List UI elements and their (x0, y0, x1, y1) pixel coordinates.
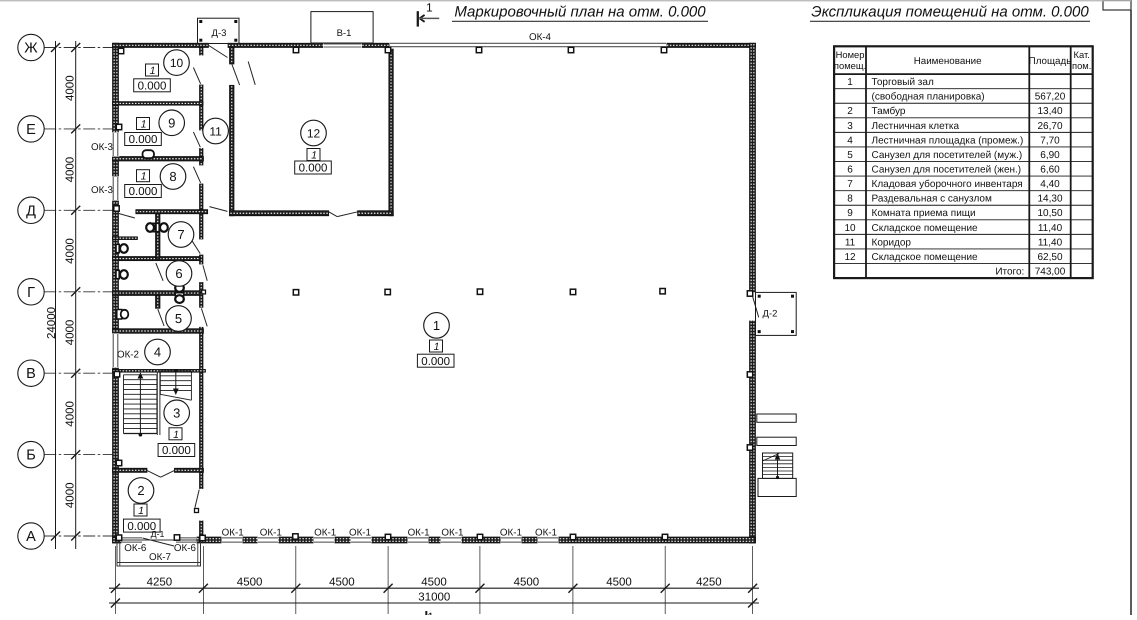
svg-text:5: 5 (847, 150, 853, 161)
svg-text:567,20: 567,20 (1035, 92, 1066, 103)
svg-text:6: 6 (847, 165, 853, 176)
svg-text:Складское помещение: Складское помещение (872, 252, 979, 263)
svg-text:4000: 4000 (64, 401, 76, 427)
svg-text:Складское помещение: Складское помещение (872, 223, 979, 234)
svg-text:11,40: 11,40 (1038, 223, 1063, 234)
svg-text:Итого:: Итого: (995, 267, 1024, 278)
svg-text:ОК-6: ОК-6 (174, 543, 197, 554)
svg-text:Д-3: Д-3 (212, 28, 227, 39)
svg-text:ОК-1: ОК-1 (349, 528, 371, 539)
svg-text:2: 2 (847, 106, 853, 117)
svg-text:ОК-2: ОК-2 (117, 350, 139, 361)
svg-text:1: 1 (847, 77, 853, 88)
svg-text:(свободная планировка): (свободная планировка) (872, 92, 985, 103)
svg-text:7: 7 (177, 227, 184, 242)
svg-text:1: 1 (141, 171, 147, 183)
svg-text:ОК-1: ОК-1 (222, 528, 244, 539)
svg-text:Тамбур: Тамбур (872, 106, 906, 117)
svg-text:Ж: Ж (24, 41, 38, 57)
svg-text:Лестничная площадка (промеж.): Лестничная площадка (промеж.) (872, 135, 1024, 146)
svg-text:12: 12 (307, 127, 321, 141)
svg-text:1: 1 (150, 65, 156, 77)
svg-text:4500: 4500 (237, 577, 263, 589)
svg-text:1: 1 (173, 429, 179, 441)
svg-text:1: 1 (138, 505, 144, 517)
svg-text:4250: 4250 (147, 577, 173, 589)
svg-text:4500: 4500 (514, 577, 540, 589)
svg-text:В-1: В-1 (337, 28, 352, 39)
svg-text:1: 1 (434, 341, 440, 353)
svg-text:0.000: 0.000 (129, 186, 158, 198)
svg-text:ОК-3: ОК-3 (91, 185, 114, 196)
svg-text:Раздевальная с санузлом: Раздевальная с санузлом (872, 194, 992, 205)
svg-text:Наименование: Наименование (914, 56, 982, 67)
svg-text:0.000: 0.000 (129, 134, 158, 146)
svg-text:4000: 4000 (64, 75, 76, 101)
svg-text:4: 4 (154, 345, 161, 360)
svg-text:А: А (26, 529, 36, 545)
svg-text:Г: Г (27, 285, 35, 301)
svg-text:1: 1 (311, 150, 317, 162)
svg-text:4250: 4250 (696, 577, 722, 589)
svg-text:11: 11 (845, 237, 856, 248)
svg-text:4500: 4500 (421, 577, 447, 589)
svg-text:743,00: 743,00 (1035, 267, 1066, 278)
svg-text:Санузел для посетителей (жен.): Санузел для посетителей (жен.) (872, 165, 1022, 176)
svg-text:пом.: пом. (1072, 60, 1091, 71)
svg-text:1: 1 (426, 1, 433, 15)
svg-text:7: 7 (847, 179, 853, 190)
svg-text:0.000: 0.000 (299, 163, 328, 175)
svg-text:ОК-1: ОК-1 (441, 528, 463, 539)
svg-text:1: 1 (427, 610, 434, 615)
svg-text:ОК-6: ОК-6 (124, 543, 147, 554)
svg-text:11: 11 (209, 125, 222, 139)
svg-text:6: 6 (175, 266, 182, 281)
svg-text:4000: 4000 (64, 238, 76, 264)
svg-text:6,60: 6,60 (1040, 165, 1060, 176)
svg-text:12: 12 (844, 252, 856, 263)
svg-text:Кладовая уборочного инвентаря: Кладовая уборочного инвентаря (872, 179, 1023, 190)
svg-text:10: 10 (844, 223, 856, 234)
svg-text:4500: 4500 (606, 577, 632, 589)
svg-text:24000: 24000 (46, 307, 58, 339)
svg-text:Торговый зал: Торговый зал (872, 77, 934, 88)
svg-text:4500: 4500 (329, 577, 355, 589)
svg-text:1: 1 (141, 119, 147, 131)
svg-text:ОК-1: ОК-1 (535, 528, 557, 539)
svg-text:ОК-1: ОК-1 (408, 528, 430, 539)
svg-text:ОК-7: ОК-7 (149, 552, 171, 563)
svg-text:14,30: 14,30 (1037, 194, 1062, 205)
svg-text:Экспликация помещений на отм.: Экспликация помещений на отм. 0.000 (811, 4, 1089, 21)
svg-text:8: 8 (169, 169, 176, 184)
svg-text:Номер: Номер (836, 49, 865, 60)
svg-text:62,50: 62,50 (1037, 252, 1062, 263)
svg-text:26,70: 26,70 (1037, 121, 1062, 132)
svg-text:0.000: 0.000 (421, 356, 450, 368)
svg-text:Д: Д (26, 203, 36, 219)
svg-text:ОК-3: ОК-3 (91, 142, 114, 153)
svg-text:4000: 4000 (64, 483, 76, 509)
svg-text:9: 9 (847, 208, 853, 219)
svg-text:4000: 4000 (64, 320, 76, 346)
svg-text:Д-1: Д-1 (151, 529, 165, 539)
svg-text:Лестничная клетка: Лестничная клетка (872, 121, 960, 132)
svg-text:ОК-1: ОК-1 (500, 528, 522, 539)
svg-text:4,40: 4,40 (1040, 179, 1060, 190)
svg-text:5: 5 (175, 311, 182, 326)
svg-text:Комната приема пищи: Комната приема пищи (872, 208, 976, 219)
svg-text:3: 3 (847, 121, 853, 132)
svg-text:10: 10 (170, 56, 184, 70)
svg-text:10,50: 10,50 (1037, 208, 1062, 219)
svg-text:4: 4 (847, 135, 853, 146)
svg-text:помещ.: помещ. (834, 60, 866, 71)
svg-text:7,70: 7,70 (1040, 135, 1060, 146)
svg-text:3: 3 (173, 405, 180, 420)
svg-text:Кат.: Кат. (1074, 49, 1090, 60)
svg-text:В: В (26, 366, 36, 382)
svg-text:4000: 4000 (64, 157, 76, 183)
svg-text:1: 1 (433, 318, 440, 333)
svg-text:2: 2 (137, 483, 144, 498)
svg-text:31000: 31000 (418, 591, 450, 603)
svg-text:ОК-1: ОК-1 (314, 528, 336, 539)
svg-text:Б: Б (26, 448, 36, 464)
svg-text:ОК-4: ОК-4 (529, 32, 552, 43)
svg-text:0.000: 0.000 (138, 81, 167, 93)
svg-text:Е: Е (26, 122, 36, 138)
svg-text:Площадь: Площадь (1029, 56, 1072, 67)
svg-text:9: 9 (168, 115, 175, 130)
svg-text:Коридор: Коридор (872, 237, 912, 248)
svg-text:8: 8 (847, 194, 853, 205)
svg-text:0.000: 0.000 (162, 445, 191, 457)
svg-text:Маркировочный план на отм. 0.0: Маркировочный план на отм. 0.000 (454, 4, 706, 21)
svg-text:11,40: 11,40 (1038, 237, 1063, 248)
svg-text:6,90: 6,90 (1040, 150, 1060, 161)
svg-text:Санузел для посетителей (муж.): Санузел для посетителей (муж.) (872, 150, 1023, 161)
svg-text:ОК-1: ОК-1 (260, 528, 282, 539)
svg-text:13,40: 13,40 (1037, 106, 1062, 117)
svg-text:Д-2: Д-2 (763, 309, 778, 320)
